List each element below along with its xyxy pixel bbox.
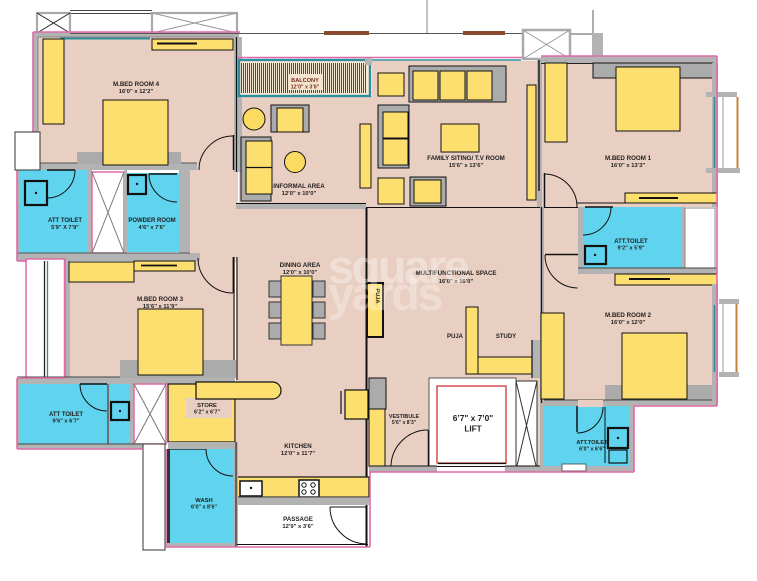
svg-text:STORE: STORE [197,403,217,409]
svg-text:15’6" x 13’6": 15’6" x 13’6" [449,163,484,169]
svg-text:12’0" x 3’6": 12’0" x 3’6" [291,85,320,91]
svg-text:5’9" X 7’9": 5’9" X 7’9" [51,225,79,231]
svg-text:12’9" x 3’6": 12’9" x 3’6" [282,524,314,530]
svg-text:ATT.TOILET: ATT.TOILET [576,440,608,446]
svg-text:M.BED ROOM 1: M.BED ROOM 1 [605,155,652,162]
svg-text:WASH: WASH [195,498,212,504]
svg-text:KITCHEN: KITCHEN [284,443,312,450]
svg-text:BALCONY: BALCONY [291,78,319,84]
svg-text:ATT TOILET: ATT TOILET [48,218,82,224]
svg-text:6’7" x 7’0": 6’7" x 7’0" [453,413,494,423]
svg-text:16’0" x 13’3": 16’0" x 13’3" [611,163,646,169]
svg-text:STUDY: STUDY [496,334,516,340]
svg-text:12’0" x 10’0": 12’0" x 10’0" [282,191,317,197]
svg-text:DINING AREA: DINING AREA [280,262,321,269]
svg-text:9’6" x 6’7": 9’6" x 6’7" [52,419,79,425]
svg-text:INFORMAL AREA: INFORMAL AREA [273,183,325,190]
svg-text:16’0" x 12’0": 16’0" x 12’0" [611,320,646,326]
svg-text:ATT.TOILET: ATT.TOILET [614,239,648,245]
svg-text:FAMILY SITING/ T.V ROOM: FAMILY SITING/ T.V ROOM [427,155,505,162]
svg-text:PASSAGE: PASSAGE [283,516,313,523]
svg-text:16’0" x 12’2": 16’0" x 12’2" [119,89,154,95]
svg-text:LIFT: LIFT [464,425,481,434]
svg-text:6’0" x 6’6": 6’0" x 6’6" [579,447,605,453]
svg-text:12’0" x 11’7": 12’0" x 11’7" [281,451,315,457]
svg-text:4’6" x 7’6": 4’6" x 7’6" [138,225,165,231]
svg-text:M.BED ROOM 3: M.BED ROOM 3 [137,296,184,303]
svg-text:ATT TOILET: ATT TOILET [49,412,83,418]
svg-text:yards: yards [328,267,442,320]
svg-text:6’2" x 6’7": 6’2" x 6’7" [194,410,221,416]
svg-text:M.BED ROOM 2: M.BED ROOM 2 [605,312,652,319]
svg-text:5’6" x 8’3": 5’6" x 8’3" [392,420,417,426]
svg-text:POWDER ROOM: POWDER ROOM [128,218,175,224]
svg-text:6’0" x 8’6": 6’0" x 8’6" [191,505,218,511]
svg-text:PUJA: PUJA [447,334,464,340]
svg-text:M.BED ROOM 4: M.BED ROOM 4 [113,81,160,88]
svg-text:12’0" x 10’0": 12’0" x 10’0" [283,270,318,276]
svg-text:9’2" x 5’9": 9’2" x 5’9" [617,246,644,252]
